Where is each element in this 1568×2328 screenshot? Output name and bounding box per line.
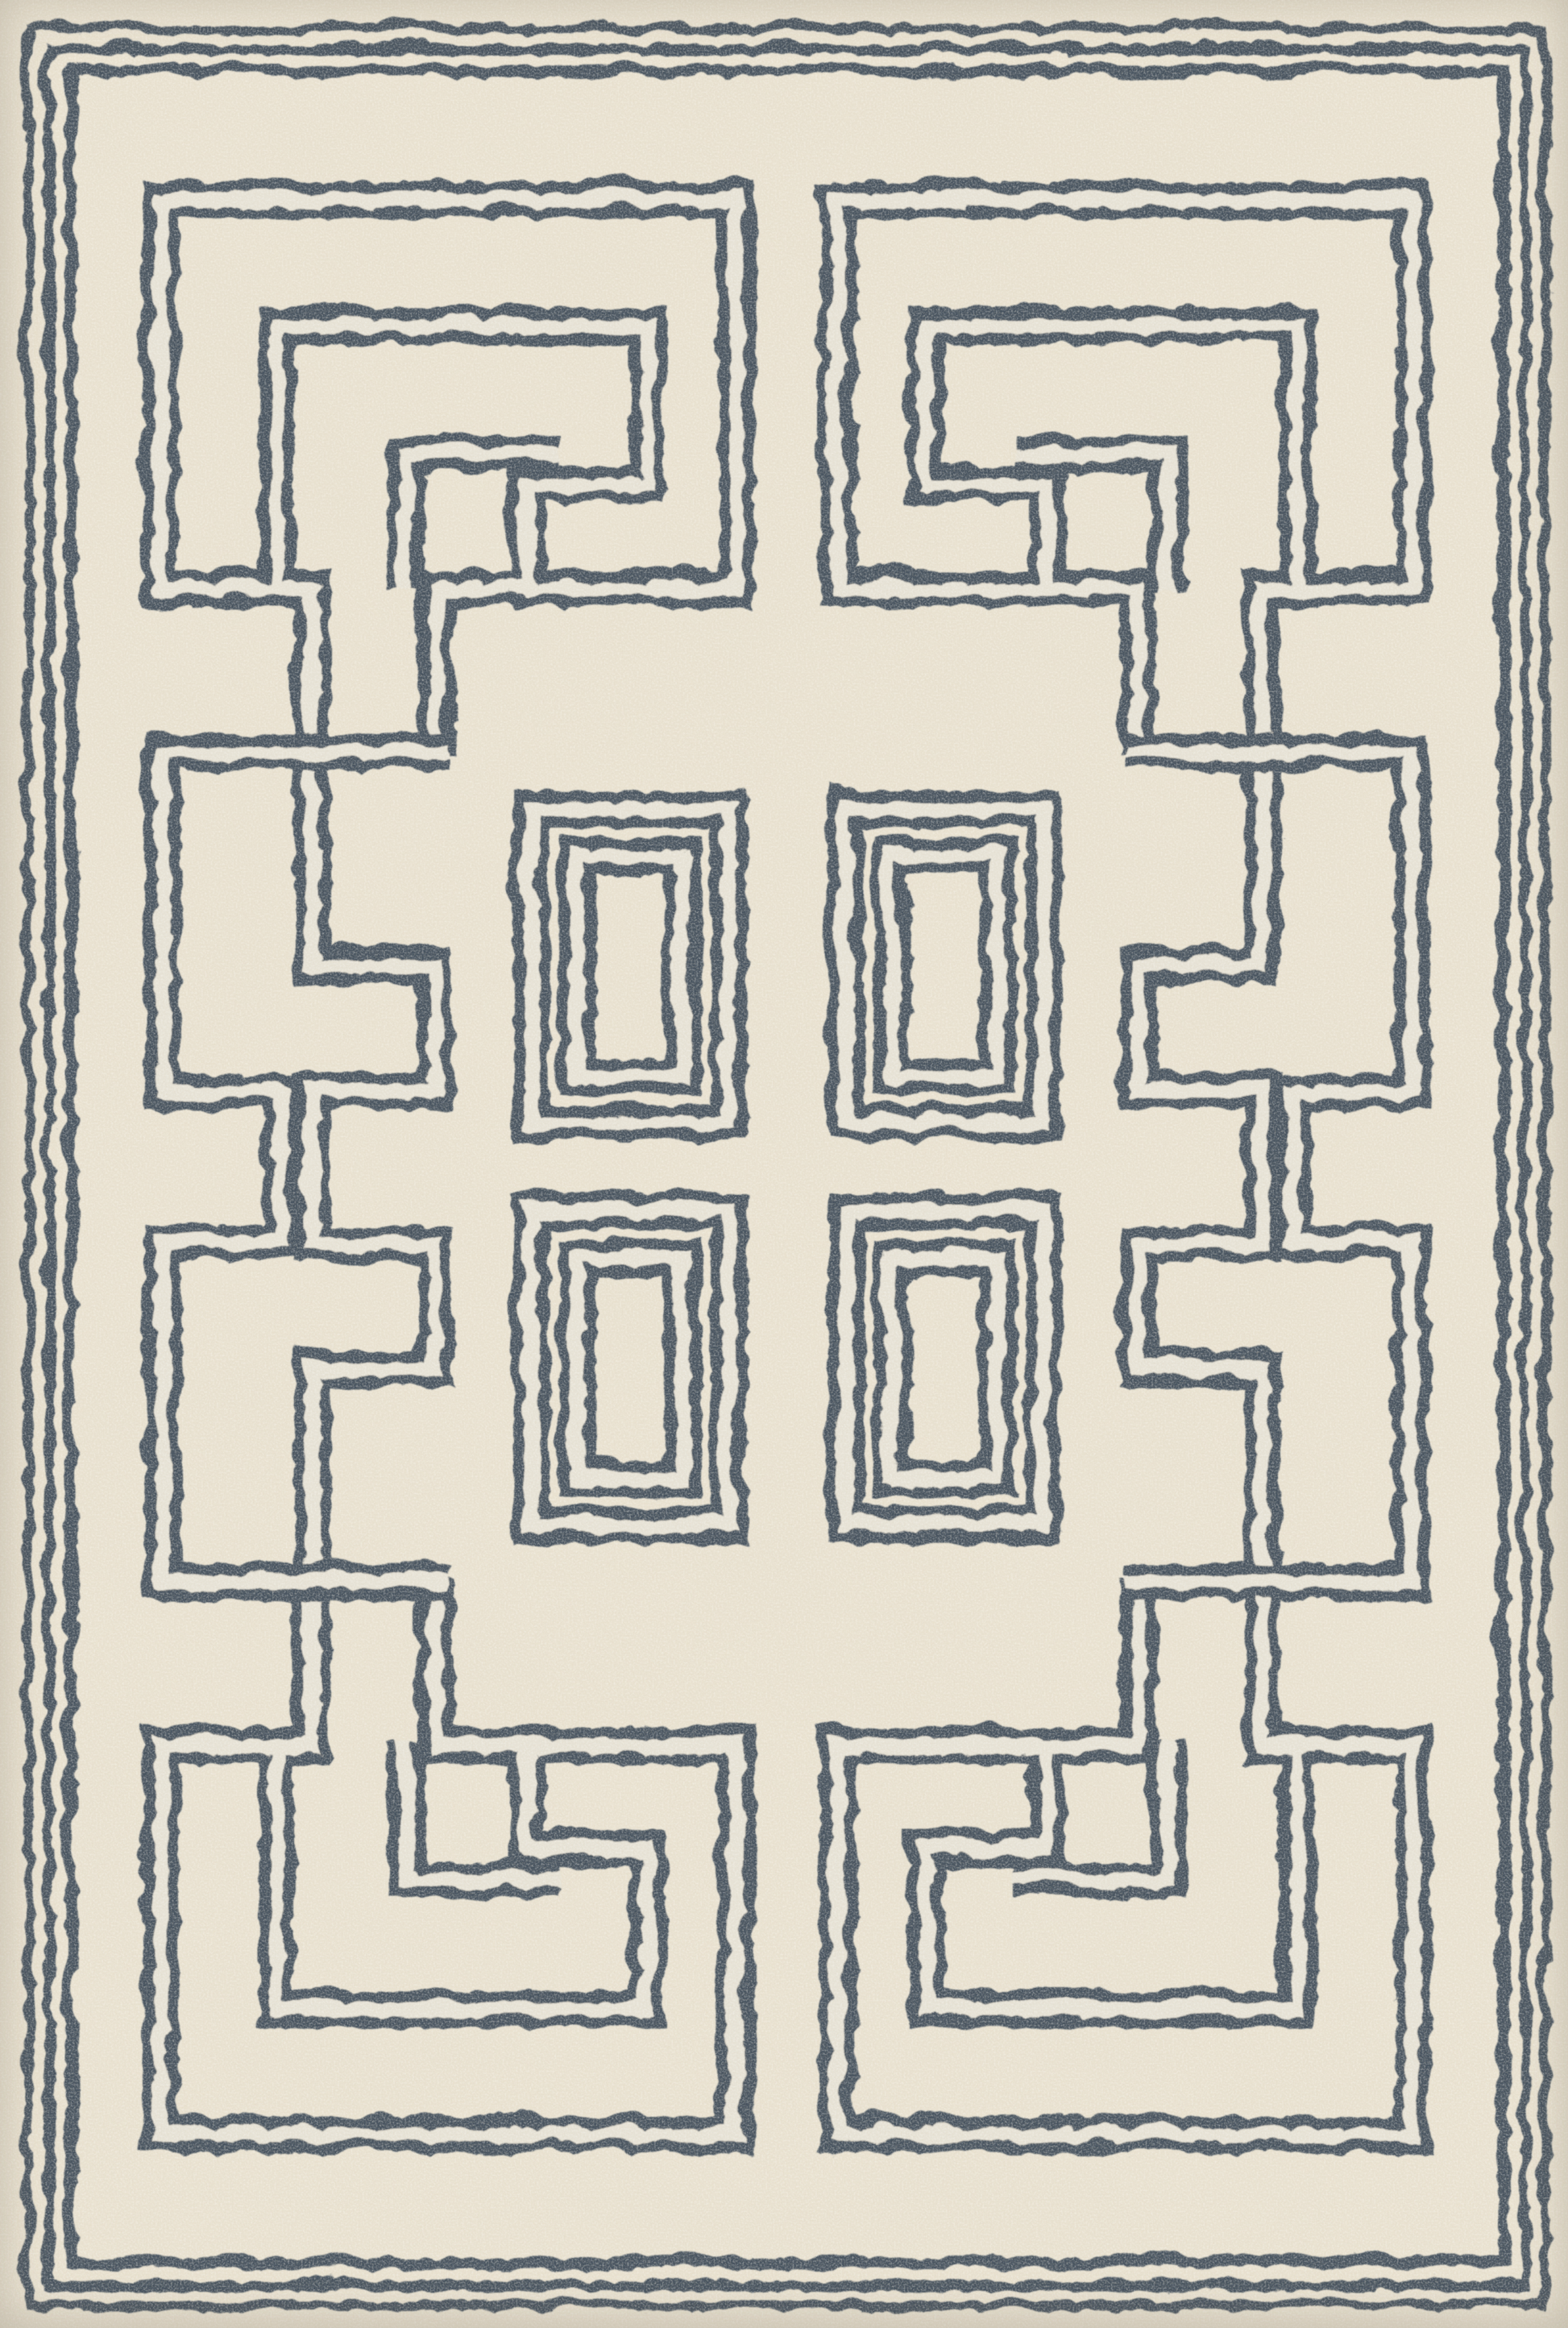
- rug-image: Hand-tufted wool area rug, overhead prod…: [0, 0, 1568, 2328]
- wool-grain-light: [0, 0, 1568, 2328]
- rug-photo: Hand-tufted wool area rug, overhead prod…: [0, 0, 1568, 2328]
